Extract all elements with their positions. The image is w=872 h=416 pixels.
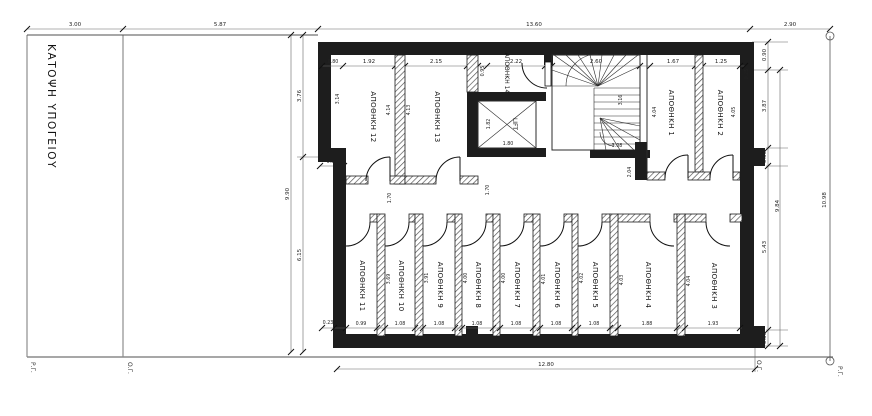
- dim-right-seg4: 5.43: [762, 240, 768, 253]
- dim-r9-width: 1.08: [434, 321, 445, 327]
- dim-right-seg2: 3.87: [762, 99, 768, 112]
- dim-r5-height: 4.02: [579, 273, 585, 284]
- dim-right-seg1: 0.90: [762, 48, 768, 61]
- wall-r14-left: [467, 55, 478, 92]
- room-label-apothiki-7: ΑΠΟΘΗΚΗ 7: [513, 262, 521, 308]
- dim-corridor-b: 1.70: [485, 185, 491, 196]
- dim-corridor-a: 1.70: [387, 193, 393, 204]
- dim-topband-wall: 0.80: [328, 59, 339, 65]
- staircase: 3.16 3.08: [552, 54, 650, 180]
- dim-r11-width: 0.99: [356, 321, 367, 327]
- door-arc-r2: [710, 155, 733, 178]
- partition-r12-r13: [395, 55, 405, 184]
- door-arc-r11: [346, 222, 370, 246]
- dim-r12-height: 3.14: [335, 94, 341, 105]
- room-label-apothiki-2: ΑΠΟΘΗΚΗ 2: [716, 90, 724, 136]
- boundary-label-pg-right: Ρ.Γ.: [836, 366, 843, 377]
- dim-left-lower: 6.15: [297, 248, 303, 261]
- door-arc-r12: [366, 157, 390, 181]
- dim-wall-right: 0.25: [744, 69, 750, 80]
- right-dimension-chain: 0.90 3.87 0.55 5.43 0.50 9.84: [752, 39, 788, 349]
- dim-r13-height: 4.13: [406, 105, 412, 116]
- dim-bottomband-wall: 0.23: [323, 320, 334, 326]
- page-title: ΚΑΤΟΨΗ ΥΠΟΓΕΙΟΥ: [45, 44, 57, 169]
- dim-lift-height: 1.82: [486, 119, 492, 130]
- door-arc-r6: [540, 222, 564, 246]
- dim-r7-width: 1.08: [511, 321, 522, 327]
- bottom-band-rooms: ΑΠΟΘΗΚΗ 11 ΑΠΟΘΗΚΗ 10 ΑΠΟΘΗΚΗ 9 ΑΠΟΘΗΚΗ …: [319, 214, 743, 336]
- dim-corridor-right: 2.04: [627, 167, 633, 178]
- dim-r6-width: 1.08: [551, 321, 562, 327]
- dim-r3-width: 1.93: [708, 321, 719, 327]
- dim-site-building: 13.60: [526, 22, 542, 28]
- door-arc-r8: [462, 222, 486, 246]
- dim-r3-height: 4.04: [686, 276, 692, 287]
- dim-r6-height: 4.01: [541, 274, 547, 285]
- partition-r1-r2: [695, 55, 703, 172]
- room-label-apothiki-11: ΑΠΟΘΗΚΗ 11: [358, 260, 366, 311]
- boundary-label-pg-left: Ρ.Γ.: [29, 362, 36, 373]
- dim-r14-height: 0.95: [480, 66, 486, 77]
- dim-r12-height-right: 4.14: [386, 105, 392, 116]
- plan-canvas: 3.00 5.87 13.60 2.90 12.80 10.98 Ρ.Γ. Ο.…: [0, 0, 872, 416]
- dim-r2-height: 4.05: [731, 107, 737, 118]
- lift-shaft: LIFT 1.82 1.80: [467, 92, 546, 157]
- door-arc-r3: [706, 222, 730, 246]
- door-arc-r4: [650, 222, 674, 246]
- dim-r1-width: 1.67: [667, 59, 680, 65]
- dim-r2-width: 1.25: [715, 59, 728, 65]
- dim-r8-height: 4.00: [463, 273, 469, 284]
- door-arc-r10: [385, 222, 409, 246]
- room-label-apothiki-8: ΑΠΟΘΗΚΗ 8: [474, 262, 482, 308]
- door-arc-r7: [500, 222, 524, 246]
- room-label-apothiki-10: ΑΠΟΘΗΚΗ 10: [397, 260, 405, 311]
- room-label-apothiki-6: ΑΠΟΘΗΚΗ 6: [553, 262, 561, 309]
- top-band-rooms: 0.80 1.92 2.15 2.22 2.60 1.67 1.25 0.25 …: [319, 55, 750, 184]
- room-label-apothiki-5: ΑΠΟΘΗΚΗ 5: [591, 262, 599, 308]
- door-arc-r14: [522, 63, 547, 88]
- floor-plan-drawing: 3.00 5.87 13.60 2.90 12.80 10.98 Ρ.Γ. Ο.…: [0, 0, 872, 416]
- room-label-apothiki-14: ΑΠΟΘΗΚΗ 14: [503, 53, 510, 94]
- room-label-apothiki-1: ΑΠΟΘΗΚΗ 1: [667, 90, 675, 136]
- dim-stair-run: 3.08: [612, 143, 623, 149]
- boundary-label-og-right: Ο.Γ.: [755, 360, 762, 372]
- room-label-lift: LIFT: [511, 118, 518, 130]
- dim-stair-height: 3.16: [618, 95, 624, 106]
- dim-r10-height: 3.69: [386, 274, 392, 285]
- room-label-apothiki-13: ΑΠΟΘΗΚΗ 13: [433, 91, 441, 142]
- dim-left-total: 9.90: [285, 187, 291, 200]
- dim-right-total: 10.98: [822, 192, 828, 208]
- dim-r1-height: 4.04: [652, 107, 658, 118]
- dim-site-yard: 5.87: [214, 22, 227, 28]
- dim-r12-width: 1.92: [363, 59, 375, 65]
- dim-bottom-building: 12.80: [538, 362, 554, 368]
- door-arc-r13: [436, 157, 460, 181]
- dim-r8-width: 1.08: [472, 321, 483, 327]
- dim-r7-height: 4.00: [501, 273, 507, 284]
- dim-right-inner-total: 9.84: [775, 199, 781, 212]
- dim-r13-width: 2.15: [430, 59, 443, 65]
- door-arc-r5: [578, 222, 602, 246]
- door-leaf-r14: [545, 62, 551, 86]
- dim-site-left: 3.00: [69, 22, 82, 28]
- room-label-apothiki-4: ΑΠΟΘΗΚΗ 4: [644, 262, 652, 309]
- door-arc-r1: [665, 155, 688, 178]
- dim-lift-width: 1.80: [503, 141, 514, 147]
- room-label-apothiki-3: ΑΠΟΘΗΚΗ 3: [710, 263, 718, 309]
- dim-r14-width: 2.22: [510, 59, 522, 65]
- dim-site-right: 2.90: [784, 22, 797, 28]
- dim-r9-height: 3.91: [424, 273, 430, 284]
- dim-r4-height: 4.03: [619, 275, 625, 286]
- boundary-label-og-left: Ο.Γ.: [126, 362, 133, 374]
- room-label-apothiki-12: ΑΠΟΘΗΚΗ 12: [369, 91, 377, 142]
- dim-left-upper: 3.76: [297, 89, 303, 102]
- dim-r5-width: 1.08: [589, 321, 600, 327]
- room-label-apothiki-9: ΑΠΟΘΗΚΗ 9: [436, 262, 444, 308]
- dim-r4-width: 1.88: [642, 321, 653, 327]
- door-arc-r9: [423, 222, 447, 246]
- rooms-1-2: ΑΠΟΘΗΚΗ 1 ΑΠΟΘΗΚΗ 2 4.04 4.05: [647, 55, 740, 180]
- dim-r10-width: 1.08: [395, 321, 406, 327]
